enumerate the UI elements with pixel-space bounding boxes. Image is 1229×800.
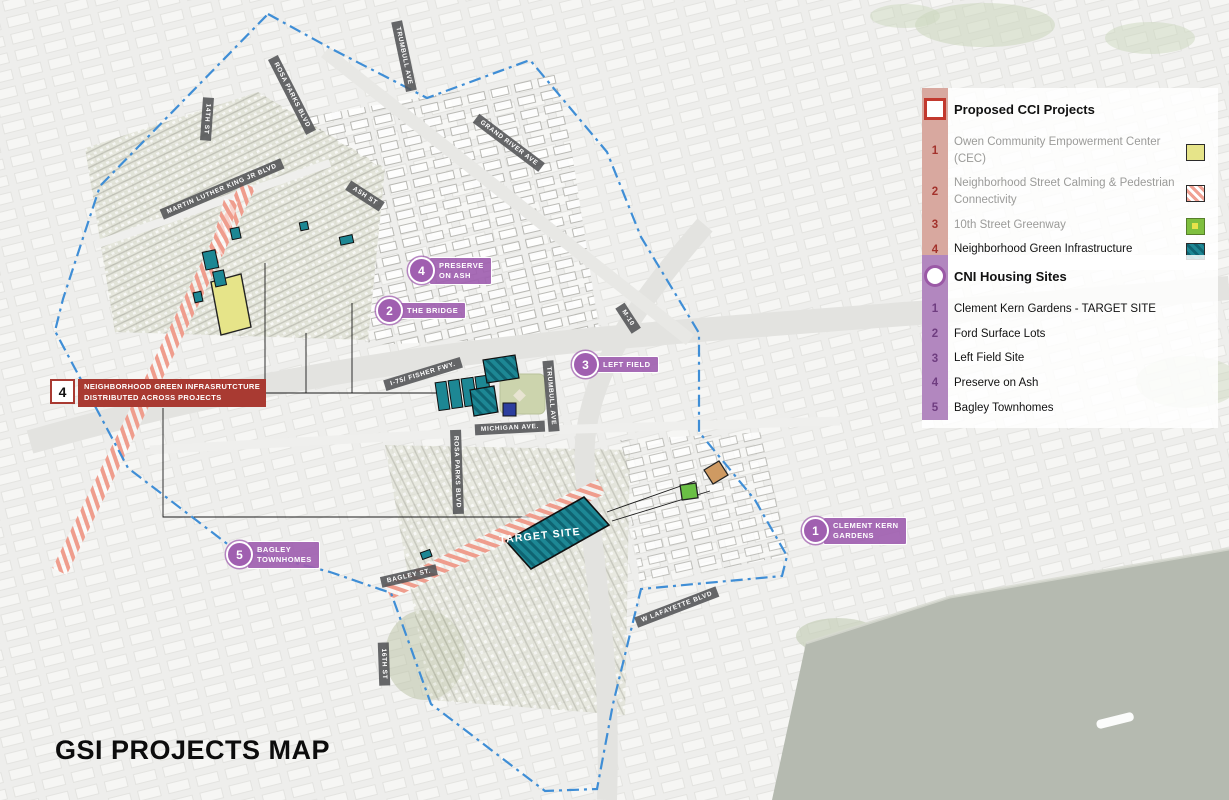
badge-clement-kern-gardens: 1 CLEMENT KERNGARDENS [802,517,907,545]
cci-item-number: 2 [922,171,948,212]
cni-item-number: 2 [922,322,948,347]
street-label-16th-st: 16TH ST [378,642,390,685]
cci-item-label: 10th Street Greenway [948,213,1186,238]
cni-item-number: 3 [922,346,948,371]
badge-number: 2 [376,297,403,324]
badge-label: LEFT FIELD [603,360,651,370]
badge-the-bridge: 2 THE BRIDGE [376,297,466,324]
cec-yellow-swatch [1186,144,1205,161]
cni-item-label: Left Field Site [948,346,1218,371]
cni-item-label: Ford Surface Lots [948,322,1218,347]
green-infrastructure-callout: 4 NEIGHBORHOOD GREEN INFRASRUTCTURE DIST… [50,379,266,407]
cci-item-number: 1 [922,130,948,171]
cni-item-label: Preserve on Ash [948,371,1218,396]
badge-number: 3 [572,351,599,378]
badge-label: BAGLEY [257,545,312,555]
badge-bagley-townhomes: 5 BAGLEYTOWNHOMES [226,541,320,569]
cni-legend-header: CNI Housing Sites [948,255,1218,297]
cni-item-label: Clement Kern Gardens - TARGET SITE [948,297,1218,322]
badge-label: CLEMENT KERN [833,521,899,531]
cci-item-number: 3 [922,213,948,238]
cci-item-label: Neighborhood Street Calming & Pedestrian… [948,171,1186,212]
badge-label: PRESERVE [439,261,484,271]
badge-label: THE BRIDGE [407,306,458,316]
page-title: GSI PROJECTS MAP [55,735,330,766]
legend-cni-housing-sites: CNI Housing Sites 1 Clement Kern Gardens… [922,255,1218,428]
greenway-swatch [1186,218,1205,235]
badge-label: TOWNHOMES [257,555,312,565]
street-calming-swatch [1186,185,1205,202]
cci-square-icon [924,98,946,120]
badge-label: ON ASH [439,271,484,281]
gsi-projects-map: 14TH ST MARTIN LUTHER KING JR BLVD ROSA … [0,0,1229,800]
callout-line2: DISTRIBUTED ACROSS PROJECTS [84,393,260,404]
cci-legend-header: Proposed CCI Projects [948,88,1186,130]
callout-line1: NEIGHBORHOOD GREEN INFRASRUTCTURE [84,382,260,393]
cni-circle-icon [924,265,946,287]
cni-item-number: 4 [922,371,948,396]
badge-preserve-on-ash: 4 PRESERVEON ASH [408,257,492,285]
callout-number: 4 [50,379,75,404]
badge-label: GARDENS [833,531,899,541]
cni-item-number: 5 [922,396,948,421]
legend-proposed-cci-projects: Proposed CCI Projects 1 Owen Community E… [922,88,1218,270]
cni-item-label: Bagley Townhomes [948,396,1218,421]
cni-item-number: 1 [922,297,948,322]
cci-item-label: Owen Community Empowerment Center (CEC) [948,130,1186,171]
badge-left-field: 3 LEFT FIELD [572,351,659,378]
